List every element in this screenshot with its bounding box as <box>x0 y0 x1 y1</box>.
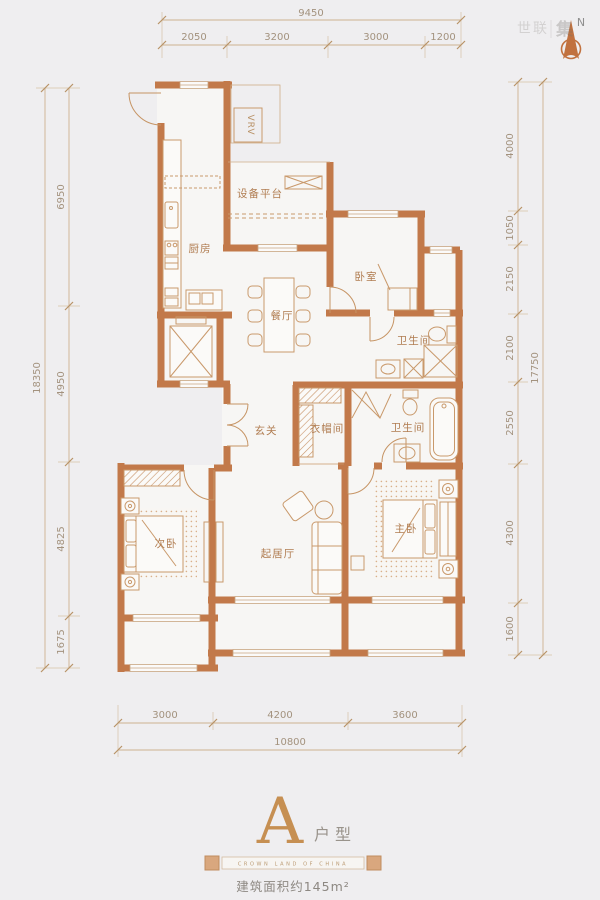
dim-bottom-seg-1: 3000 <box>152 710 177 721</box>
window <box>258 245 297 252</box>
label-living: 起居厅 <box>261 548 296 560</box>
dim-left-seg-2: 4950 <box>56 371 67 396</box>
plan-suffix: 户型 <box>314 825 356 844</box>
label-cloakroom: 衣帽间 <box>310 422 345 435</box>
dim-right-overall: 17750 <box>530 352 541 384</box>
label-foyer: 玄关 <box>255 424 278 437</box>
balcony-door <box>372 597 443 604</box>
elevator-shaft <box>170 317 212 377</box>
north-label: N <box>577 16 585 29</box>
dim-left-seg-3: 4825 <box>56 526 67 551</box>
label-kitchen: 厨房 <box>189 242 212 255</box>
window <box>130 665 197 672</box>
label-dining: 餐厅 <box>271 309 294 322</box>
window <box>180 82 208 89</box>
entry-door <box>129 93 161 125</box>
label-vrv: VRV <box>245 114 255 135</box>
dim-right-seg-2: 1050 <box>505 215 516 240</box>
dim-right-seg-6: 4300 <box>505 520 516 545</box>
label-master-bedroom: 主卧 <box>395 522 418 535</box>
floorplan-page: 9450 2050 3200 3000 1200 18350 6950 4950… <box>0 0 600 900</box>
label-second-bedroom: 次卧 <box>155 537 178 550</box>
label-bath-upper: 卫生间 <box>397 334 432 347</box>
dim-right-seg-1: 4000 <box>505 133 516 158</box>
title-divider: CROWN LAND OF CHINA <box>205 856 381 870</box>
brand-watermark: 世联 集 <box>517 19 574 40</box>
dim-left-overall: 18350 <box>32 362 43 394</box>
dim-right-seg-7: 1600 <box>505 616 516 641</box>
dim-bottom-seg-3: 3600 <box>392 710 417 721</box>
window <box>368 650 443 657</box>
area-text: 建筑面积约145m² <box>236 879 350 894</box>
balcony-door <box>235 597 330 604</box>
floorplan-canvas: 9450 2050 3200 3000 1200 18350 6950 4950… <box>0 0 600 900</box>
label-equipment-platform: 设备平台 <box>237 187 283 200</box>
dim-right-seg-4: 2100 <box>505 335 516 360</box>
dim-top-seg-4: 1200 <box>430 32 455 43</box>
dim-bottom-overall: 10800 <box>274 737 306 748</box>
dim-top-seg-3: 3000 <box>363 32 388 43</box>
label-bath-lower: 卫生间 <box>391 421 426 434</box>
label-bedroom: 卧室 <box>355 270 378 283</box>
dim-top-seg-1: 2050 <box>181 32 206 43</box>
dim-bottom-seg-2: 4200 <box>267 710 292 721</box>
dim-left-seg-4: 1675 <box>56 629 67 654</box>
dim-top-overall: 9450 <box>298 8 323 19</box>
window <box>434 310 450 317</box>
window <box>133 615 200 622</box>
watermark-right-text: 集 <box>555 19 574 40</box>
title-block: A 户型 CROWN LAND OF CHINA 建筑面积约145m² <box>205 785 381 894</box>
dim-top-seg-2: 3200 <box>264 32 289 43</box>
window <box>233 650 330 657</box>
window <box>180 381 208 388</box>
window <box>348 211 398 218</box>
dim-right-seg-5: 2550 <box>505 410 516 435</box>
window <box>430 247 452 254</box>
dim-left-seg-1: 6950 <box>56 184 67 209</box>
watermark-left-text: 世联 <box>517 21 549 37</box>
plan-name: A <box>256 785 304 859</box>
divider-text: CROWN LAND OF CHINA <box>238 862 348 868</box>
dim-right-seg-3: 2150 <box>505 266 516 291</box>
